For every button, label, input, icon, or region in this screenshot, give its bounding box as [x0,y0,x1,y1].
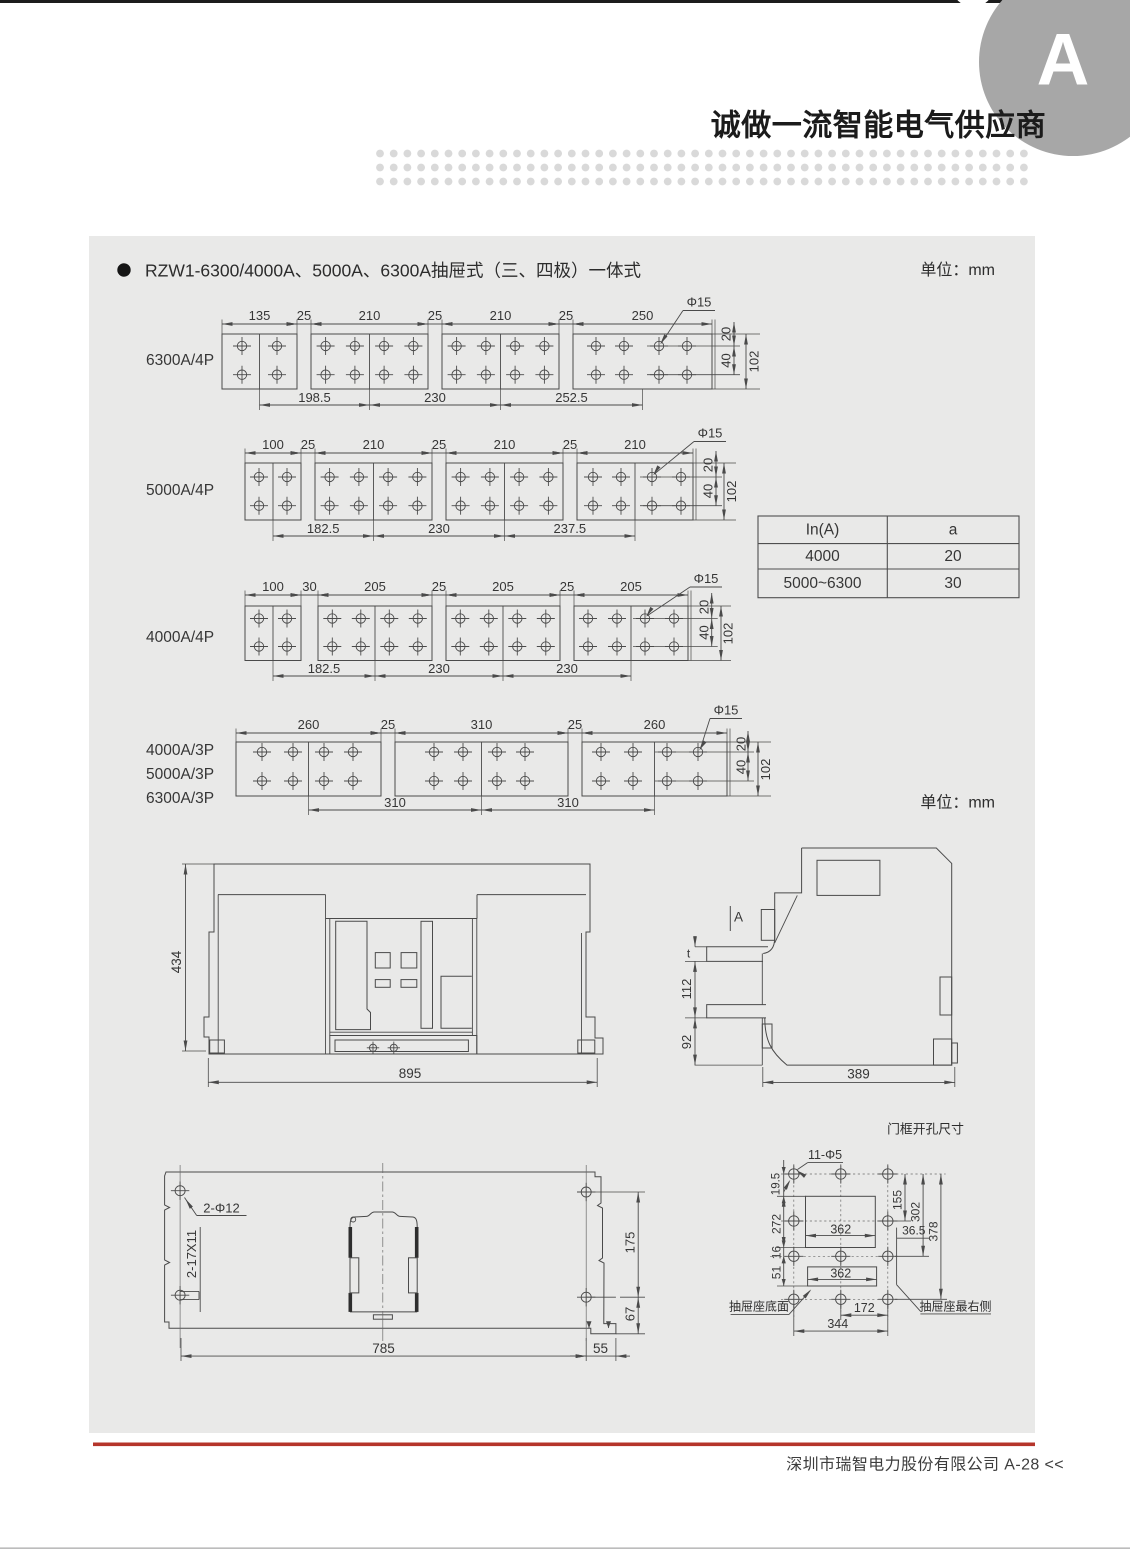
svg-text:362: 362 [830,1267,851,1281]
svg-text:344: 344 [827,1317,848,1331]
svg-text:250: 250 [632,308,654,323]
svg-text:Φ15: Φ15 [698,426,723,441]
svg-text:30: 30 [944,575,962,592]
svg-text:100: 100 [262,437,284,452]
svg-text:785: 785 [372,1341,395,1356]
svg-text:55: 55 [593,1341,608,1356]
svg-text:210: 210 [490,308,512,323]
svg-text:36.5: 36.5 [902,1224,926,1238]
svg-text:In(A): In(A) [806,522,840,539]
svg-text:434: 434 [169,950,184,973]
svg-text:210: 210 [494,437,516,452]
svg-text:389: 389 [847,1067,870,1082]
svg-text:Φ15: Φ15 [714,703,739,718]
svg-text:16: 16 [770,1246,784,1260]
svg-text:25: 25 [297,308,311,323]
svg-text:20: 20 [697,600,712,614]
svg-text:205: 205 [364,579,386,594]
svg-text:5000A/4P: 5000A/4P [146,482,214,499]
svg-text:155: 155 [891,1190,905,1210]
svg-text:40: 40 [701,484,716,498]
svg-text:51: 51 [770,1266,784,1280]
svg-text:A: A [734,910,743,925]
svg-text:40: 40 [719,353,734,367]
svg-text:5000~6300: 5000~6300 [783,575,861,592]
svg-text:310: 310 [471,717,493,732]
svg-text:67: 67 [623,1307,638,1321]
svg-text:362: 362 [830,1223,851,1237]
svg-text:175: 175 [623,1232,638,1254]
svg-text:210: 210 [359,308,381,323]
svg-text:25: 25 [568,717,582,732]
svg-text:a: a [949,522,958,539]
svg-text:102: 102 [724,481,739,503]
svg-text:A: A [1037,20,1090,101]
svg-text:25: 25 [301,437,315,452]
svg-text:25: 25 [432,579,446,594]
svg-text:230: 230 [428,521,450,536]
svg-text:2-17X11: 2-17X11 [184,1230,199,1278]
svg-text:260: 260 [644,717,666,732]
svg-text:单位：mm: 单位：mm [920,794,995,812]
svg-text:20: 20 [719,327,734,341]
svg-text:230: 230 [556,661,578,676]
svg-text:102: 102 [721,623,736,645]
svg-text:205: 205 [620,579,642,594]
svg-text:182.5: 182.5 [308,661,341,676]
svg-text:40: 40 [734,760,749,774]
svg-text:252.5: 252.5 [555,390,588,405]
svg-text:210: 210 [624,437,646,452]
svg-text:4000A/3P: 4000A/3P [146,742,214,759]
svg-text:诚做一流智能电气供应商: 诚做一流智能电气供应商 [711,109,1047,143]
svg-text:25: 25 [428,308,442,323]
svg-text:230: 230 [428,661,450,676]
svg-text:210: 210 [363,437,385,452]
svg-text:门框开孔尺寸: 门框开孔尺寸 [887,1122,964,1137]
svg-text:135: 135 [249,308,271,323]
svg-text:310: 310 [557,795,579,810]
svg-text:19.5: 19.5 [771,1173,783,1195]
svg-text:895: 895 [399,1066,422,1081]
svg-text:单位：mm: 单位：mm [920,261,995,279]
svg-text:RZW1-6300/4000A、5000A、6300A抽屉式: RZW1-6300/4000A、5000A、6300A抽屉式（三、四极）一体式 [145,261,641,281]
svg-text:198.5: 198.5 [298,390,331,405]
svg-text:20: 20 [734,737,749,751]
svg-text:25: 25 [560,579,574,594]
svg-text:182.5: 182.5 [307,521,340,536]
svg-text:205: 205 [492,579,514,594]
svg-text:Φ15: Φ15 [694,571,719,586]
svg-text:302: 302 [909,1202,923,1222]
svg-text:30: 30 [302,579,316,594]
svg-text:112: 112 [679,979,694,1000]
svg-text:102: 102 [747,351,762,373]
svg-text:25: 25 [559,308,573,323]
svg-text:6300A/4P: 6300A/4P [146,352,214,369]
svg-text:92: 92 [679,1035,694,1049]
svg-text:2-Φ12: 2-Φ12 [203,1201,239,1216]
svg-text:20: 20 [701,458,716,472]
svg-text:深圳市瑞智电力股份有限公司 A-28 <<: 深圳市瑞智电力股份有限公司 A-28 << [786,1456,1064,1474]
svg-text:102: 102 [758,759,773,781]
svg-text:6300A/3P: 6300A/3P [146,790,214,807]
svg-text:237.5: 237.5 [554,521,587,536]
svg-text:260: 260 [298,717,320,732]
svg-text:抽屉座底面: 抽屉座底面 [729,1299,789,1314]
svg-text:4000: 4000 [805,548,840,565]
svg-text:Φ15: Φ15 [687,295,712,310]
svg-text:310: 310 [384,795,406,810]
svg-text:抽屉座最右侧: 抽屉座最右侧 [919,1299,991,1314]
svg-text:272: 272 [770,1214,784,1234]
svg-text:5000A/3P: 5000A/3P [146,766,214,783]
svg-text:172: 172 [854,1301,875,1315]
svg-text:25: 25 [432,437,446,452]
svg-text:230: 230 [424,390,446,405]
svg-text:11-Φ5: 11-Φ5 [808,1148,842,1162]
svg-text:20: 20 [944,548,962,565]
svg-text:100: 100 [262,579,284,594]
svg-text:40: 40 [697,625,712,639]
svg-text:4000A/4P: 4000A/4P [146,629,214,646]
svg-text:25: 25 [381,717,395,732]
svg-text:25: 25 [563,437,577,452]
